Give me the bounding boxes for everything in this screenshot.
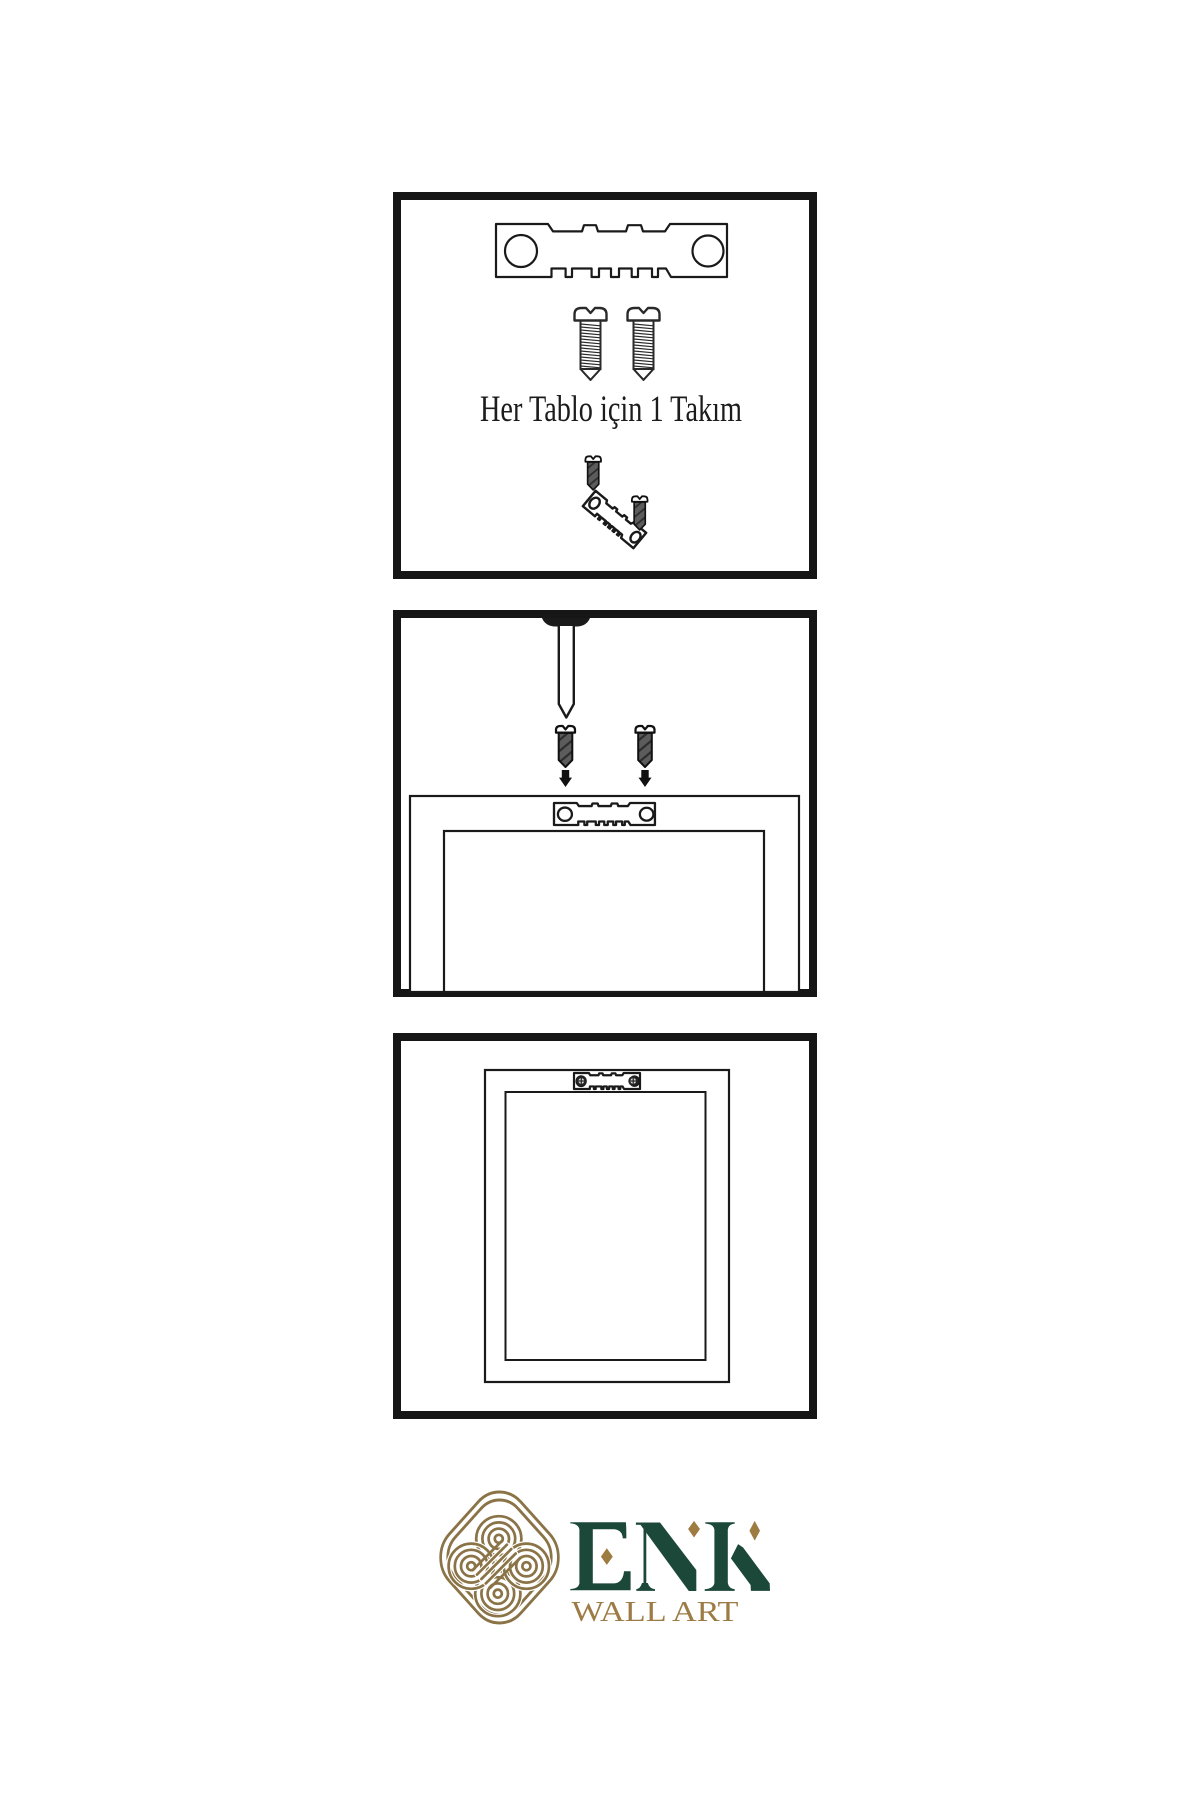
svg-text:Her Tablo için 1 Takım: Her Tablo için 1 Takım	[480, 389, 742, 430]
svg-text:WALL ART: WALL ART	[572, 1596, 739, 1628]
